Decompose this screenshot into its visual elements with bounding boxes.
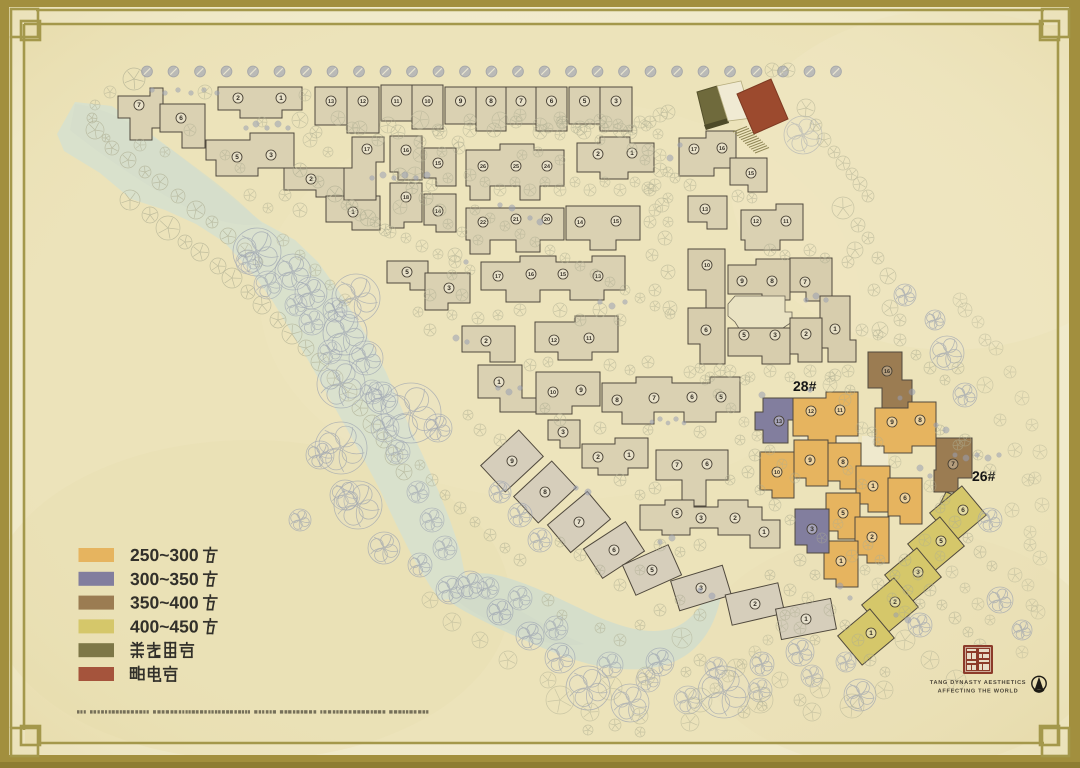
svg-text:AFFECTING THE WORLD: AFFECTING THE WORLD [938,689,1019,695]
svg-text:3: 3 [773,332,777,339]
svg-text:1: 1 [869,630,873,637]
svg-text:7: 7 [652,395,656,402]
svg-text:2: 2 [596,454,600,461]
svg-text:3: 3 [447,285,451,292]
svg-text:1: 1 [627,452,631,459]
svg-text:7: 7 [803,279,807,286]
svg-text:9: 9 [808,457,812,464]
svg-text:16: 16 [528,272,534,278]
svg-text:5: 5 [583,98,587,105]
svg-text:11: 11 [586,336,592,342]
svg-text:12: 12 [360,99,366,105]
svg-text:5: 5 [841,510,845,517]
svg-text:8: 8 [841,459,845,466]
svg-text:7: 7 [137,102,141,109]
svg-text:11: 11 [783,219,789,225]
svg-text:11: 11 [394,99,400,105]
svg-text:7: 7 [577,519,581,526]
svg-text:1: 1 [762,529,766,536]
svg-text:1: 1 [839,558,843,565]
svg-text:13: 13 [328,99,334,105]
svg-text:9: 9 [510,458,514,465]
svg-text:2: 2 [733,515,737,522]
svg-text:28#: 28# [793,378,817,394]
svg-text:10: 10 [774,470,780,476]
svg-text:7: 7 [675,462,679,469]
svg-text:6: 6 [705,461,709,468]
svg-text:5: 5 [939,538,943,545]
svg-text:26: 26 [480,164,486,170]
svg-text:6: 6 [550,98,554,105]
svg-text:12: 12 [808,409,814,415]
svg-text:20: 20 [544,217,550,223]
svg-text:12: 12 [753,219,759,225]
svg-text:9: 9 [459,98,463,105]
svg-text:2: 2 [596,151,600,158]
svg-text:2: 2 [484,338,488,345]
svg-text:11: 11 [837,408,843,414]
svg-text:6: 6 [704,327,708,334]
svg-text:6: 6 [961,507,965,514]
svg-text:1: 1 [833,326,837,333]
svg-text:6: 6 [690,394,694,401]
svg-text:2: 2 [804,331,808,338]
svg-text:8: 8 [489,98,493,105]
svg-text:300~350: 300~350 [130,569,199,589]
svg-text:24: 24 [544,164,550,170]
svg-text:8: 8 [543,489,547,496]
svg-text:2: 2 [870,534,874,541]
svg-text:3: 3 [561,429,565,436]
svg-text:6: 6 [903,495,907,502]
svg-text:8: 8 [770,278,774,285]
svg-text:3: 3 [614,98,618,105]
svg-text:5: 5 [235,154,239,161]
svg-text:1: 1 [871,483,875,490]
svg-text:6: 6 [179,115,183,122]
svg-text:250~300: 250~300 [130,545,199,565]
svg-text:17: 17 [495,274,501,280]
svg-text:7: 7 [519,98,523,105]
svg-text:8: 8 [918,417,922,424]
svg-text:9: 9 [740,278,744,285]
svg-text:7: 7 [951,461,955,468]
svg-text:16: 16 [403,148,409,154]
svg-text:2: 2 [753,601,757,608]
svg-text:14: 14 [577,220,583,226]
svg-text:15: 15 [560,272,566,278]
svg-text:25: 25 [513,164,519,170]
svg-text:TANG DYNASTY AESTHETICS: TANG DYNASTY AESTHETICS [930,680,1027,686]
svg-text:3: 3 [810,526,814,533]
svg-text:350~400: 350~400 [130,593,199,613]
svg-text:16: 16 [884,369,890,375]
svg-text:9: 9 [579,387,583,394]
svg-text:5: 5 [405,269,409,276]
svg-text:6: 6 [612,547,616,554]
svg-text:10: 10 [550,390,556,396]
svg-text:3: 3 [269,152,273,159]
svg-text:21: 21 [513,217,519,223]
svg-text:9: 9 [890,419,894,426]
svg-text:1: 1 [497,379,501,386]
svg-text:18: 18 [403,195,409,201]
svg-text:15: 15 [613,219,619,225]
svg-text:1: 1 [279,95,283,102]
svg-text:5: 5 [742,332,746,339]
svg-text:10: 10 [425,99,431,105]
svg-text:17: 17 [364,147,370,153]
svg-text:15: 15 [435,161,441,167]
svg-text:5: 5 [675,510,679,517]
svg-text:3: 3 [699,515,703,522]
svg-text:5: 5 [650,567,654,574]
svg-text:2: 2 [236,95,240,102]
svg-text:15: 15 [748,171,754,177]
svg-text:13: 13 [776,419,782,425]
svg-text:10: 10 [704,263,710,269]
svg-text:13: 13 [702,207,708,213]
svg-text:16: 16 [719,146,725,152]
svg-text:17: 17 [691,147,697,153]
svg-text:8: 8 [615,397,619,404]
svg-text:12: 12 [551,338,557,344]
svg-text:1: 1 [804,616,808,623]
svg-text:400~450: 400~450 [130,616,199,636]
svg-text:22: 22 [480,220,486,226]
